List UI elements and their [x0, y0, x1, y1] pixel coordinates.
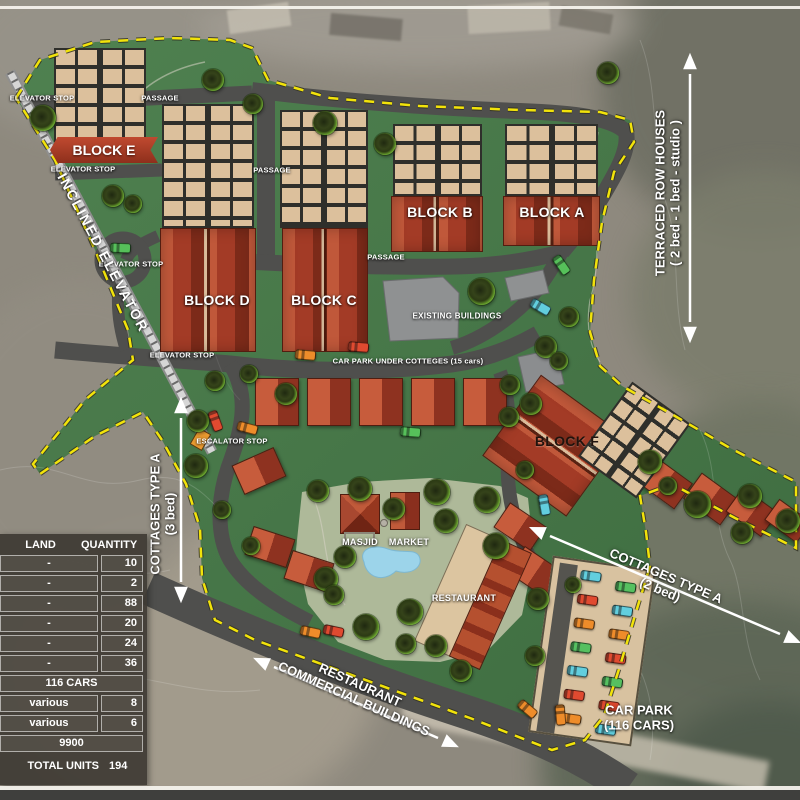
land-column-header: LAND [0, 539, 81, 551]
passage-label: PASSAGE [141, 94, 179, 103]
land-cell: 116 CARS [0, 675, 143, 692]
table-row: -36 [0, 655, 143, 672]
table-row: -88 [0, 595, 143, 612]
table-row: -24 [0, 635, 143, 652]
escalator-stop-label: ESCALATOR STOP [196, 437, 267, 446]
elevator-stop-label: ELEVATOR STOP [150, 351, 215, 360]
quantity-cell: 8 [101, 695, 143, 712]
quantity-cell: 2 [101, 575, 143, 592]
table-row: -20 [0, 615, 143, 632]
table-total-row: TOTAL UNITS 194 [0, 760, 143, 776]
car-park-annotation: CAR PARK (116 CARS) [604, 703, 674, 734]
cottages-3bed-annotation: COTTAGES TYPE A (3 bed) [148, 453, 179, 574]
land-cell: - [0, 615, 98, 632]
table-row: 9900 [0, 735, 143, 752]
land-cell: various [0, 695, 98, 712]
block-a-label: BLOCK A [519, 204, 584, 220]
quantity-cell: 6 [101, 715, 143, 732]
restaurant-label: RESTAURANT [432, 593, 496, 603]
block-f-label: BLOCK F [535, 433, 599, 449]
land-cell: - [0, 575, 98, 592]
block-c-label: BLOCK C [291, 292, 357, 308]
land-cell: 9900 [0, 735, 143, 752]
passage-label: PASSAGE [367, 253, 405, 262]
quantity-cell: 88 [101, 595, 143, 612]
quantity-cell: 36 [101, 655, 143, 672]
market-label: MARKET [389, 537, 429, 547]
table-row: -2 [0, 575, 143, 592]
masjid-label: MASJID [342, 537, 378, 547]
quantity-column-header: QUANTITY [81, 539, 143, 551]
restaurant-commercial-annotation: RESTAURANT COMMERCIAL BUILDINGS [276, 645, 439, 740]
land-cell: - [0, 555, 98, 572]
bottom-bar [0, 790, 800, 800]
unit-quantity-table: LAND QUANTITY -10-2-88-20-24-36116 CARSv… [0, 534, 147, 785]
table-row: -10 [0, 555, 143, 572]
elevator-stop-label: ELEVATOR STOP [51, 165, 116, 174]
land-cell: various [0, 715, 98, 732]
existing-buildings-label: EXISTING BUILDINGS [413, 312, 502, 321]
car-park-under-cottages-label: CAR PARK UNDER COTTEGES (15 cars) [333, 357, 484, 366]
land-cell: - [0, 595, 98, 612]
block-b-label: BLOCK B [407, 204, 473, 220]
top-frame-line [0, 6, 800, 9]
table-header: LAND QUANTITY [0, 539, 143, 551]
quantity-cell: 10 [101, 555, 143, 572]
inclined-elevator-annotation: INCLINED ELEVATOR [54, 171, 152, 336]
site-master-plan: BLOCK E BLOCK D BLOCK C BLOCK B BLOCK A … [0, 0, 800, 800]
quantity-cell: 20 [101, 615, 143, 632]
terraced-row-houses-annotation: TERRACED ROW HOUSES ( 2 bed - 1 bed - st… [653, 110, 684, 276]
total-units-value: 194 [109, 760, 143, 776]
land-cell: - [0, 635, 98, 652]
table-row: various8 [0, 695, 143, 712]
cottages-2bed-annotation: COTTAGES TYPE A (2 bed) [601, 545, 725, 621]
elevator-stop-label: ELEVATOR STOP [10, 94, 75, 103]
table-row: various6 [0, 715, 143, 732]
block-d-label: BLOCK D [184, 292, 250, 308]
passage-label: PASSAGE [253, 166, 291, 175]
table-row: 116 CARS [0, 675, 143, 692]
total-units-label: TOTAL UNITS [0, 760, 109, 776]
block-e-banner: BLOCK E [50, 137, 158, 163]
land-cell: - [0, 655, 98, 672]
quantity-cell: 24 [101, 635, 143, 652]
